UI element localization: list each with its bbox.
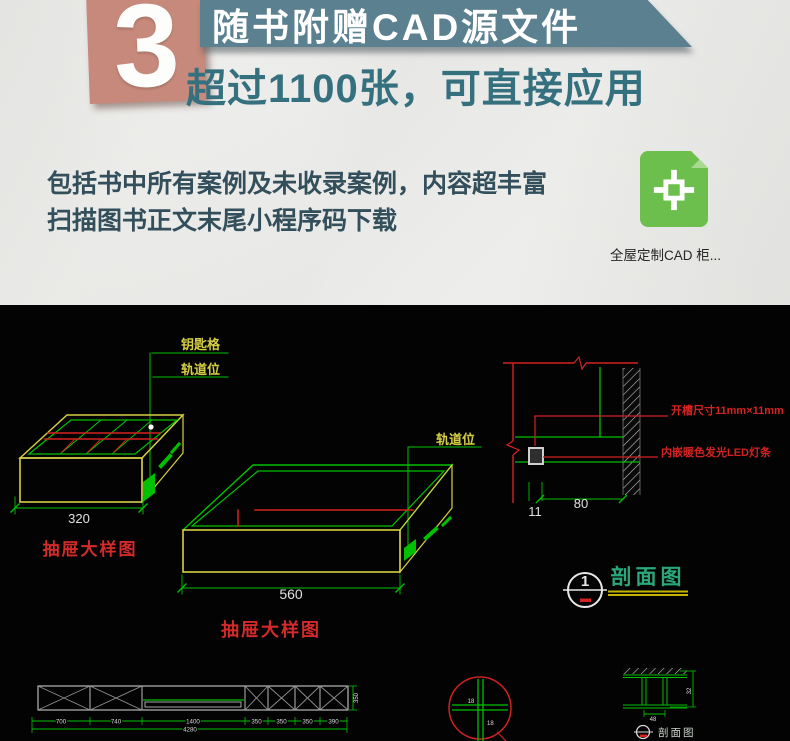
- headline: 超过1100张，可直接应用: [186, 56, 746, 114]
- body-text: 包括书中所有案例及未收录案例，内容超丰富 扫描图书正文末尾小程序码下载: [47, 166, 607, 240]
- file-caption: 全屋定制CAD 柜...: [610, 244, 780, 264]
- folded-corner-icon: [691, 151, 708, 168]
- title-banner: 随书附赠CAD源文件: [200, 0, 692, 47]
- dim-11: 11: [528, 504, 542, 519]
- dim-320: 320: [68, 511, 90, 526]
- promo-page: 3 随书附赠CAD源文件 超过1100张，可直接应用 包括书中所有案例及未收录案…: [0, 0, 790, 741]
- handle-groove: [145, 702, 241, 707]
- mini-height-dim: 32: [687, 687, 693, 694]
- cad-file-icon: [640, 151, 708, 227]
- elev-total-dim: 4280: [183, 727, 197, 734]
- label-key-slot: 钥匙格: [181, 337, 221, 352]
- led-channel: [529, 448, 543, 464]
- elev-seg-dim: 350: [276, 719, 287, 726]
- elev-seg-dim: 350: [251, 719, 262, 726]
- dim-560: 560: [279, 586, 303, 602]
- cad-drawing: 钥匙格 轨道位: [0, 305, 790, 741]
- elev-seg-dim: 1400: [186, 719, 200, 726]
- middle-drawer-detail: 轨道位 560 抽屉大样图: [178, 432, 481, 640]
- promo-header: 3 随书附赠CAD源文件 超过1100张，可直接应用 包括书中所有案例及未收录案…: [0, 0, 790, 305]
- ceiling-hatch: [623, 668, 687, 674]
- elev-seg-dim: 350: [302, 719, 313, 726]
- banner-shape: 随书附赠CAD源文件: [200, 0, 692, 47]
- cad-drawing-panel: 钥匙格 轨道位: [0, 305, 790, 741]
- elev-seg-dim: 740: [111, 719, 122, 726]
- led-section-detail: 开槽尺寸11mm×11mm 内嵌暖色发光LED灯条 80 11: [503, 357, 784, 519]
- section-marker: 1 剖面图: [563, 565, 688, 607]
- section-number: 1: [581, 573, 589, 590]
- body-line-2: 扫描图书正文末尾小程序码下载: [47, 203, 607, 240]
- elev-seg-dim: 390: [328, 719, 339, 726]
- wall-hatch: [623, 368, 640, 495]
- section-title: 剖面图: [611, 565, 686, 589]
- bubble-dim-a: 18: [468, 699, 475, 705]
- mini-section-title: 剖面图: [658, 726, 696, 739]
- groove-label: 开槽尺寸11mm×11mm: [671, 403, 784, 417]
- label-track-mid: 轨道位: [436, 432, 475, 447]
- elev-height-dim: 350: [354, 692, 360, 703]
- mid-drawer-caption: 抽屉大样图: [221, 619, 321, 640]
- banner-title: 随书附赠CAD源文件: [200, 0, 581, 51]
- detail-bubble: 18 18: [449, 677, 511, 741]
- mini-section-detail: 32 48 剖面图: [623, 668, 696, 739]
- label-track-left: 轨道位: [181, 362, 220, 377]
- dim-80: 80: [574, 496, 588, 511]
- body-line-1: 包括书中所有案例及未收录案例，内容超丰富: [47, 166, 607, 203]
- badge-number: 3: [112, 0, 182, 106]
- elev-seg-dim: 700: [56, 719, 67, 726]
- led-label: 内嵌暖色发光LED灯条: [661, 445, 772, 459]
- left-drawer-caption: 抽屉大样图: [43, 539, 138, 559]
- crosshair-icon: [651, 167, 697, 213]
- mini-width-dim: 48: [650, 717, 657, 723]
- bubble-dim-b: 18: [487, 721, 494, 727]
- cabinet-elevation: 350 700 740 1400 350 350 350 390: [32, 686, 360, 734]
